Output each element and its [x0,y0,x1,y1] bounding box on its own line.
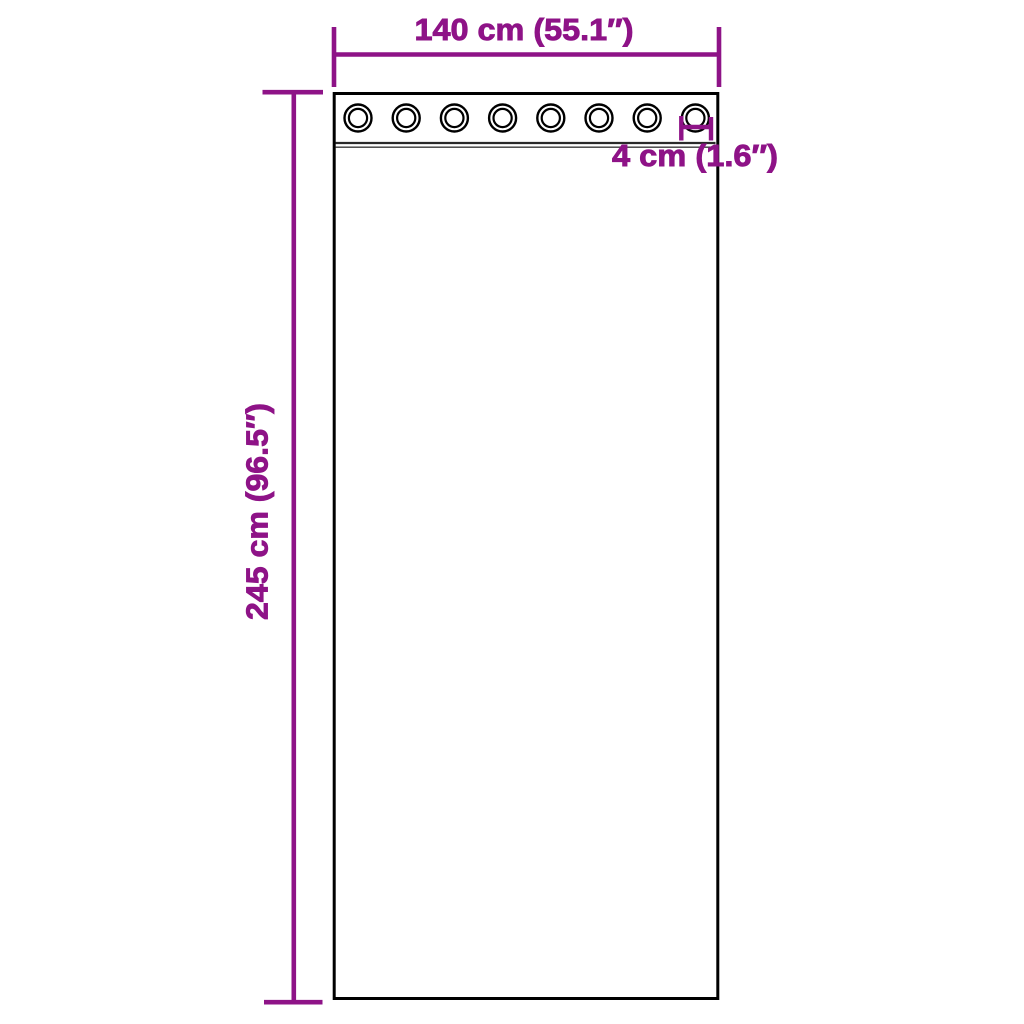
svg-text:245 cm (96.5″): 245 cm (96.5″) [240,403,275,620]
svg-text:140 cm (55.1″): 140 cm (55.1″) [415,12,634,47]
svg-text:4 cm (1.6″): 4 cm (1.6″) [612,138,778,173]
